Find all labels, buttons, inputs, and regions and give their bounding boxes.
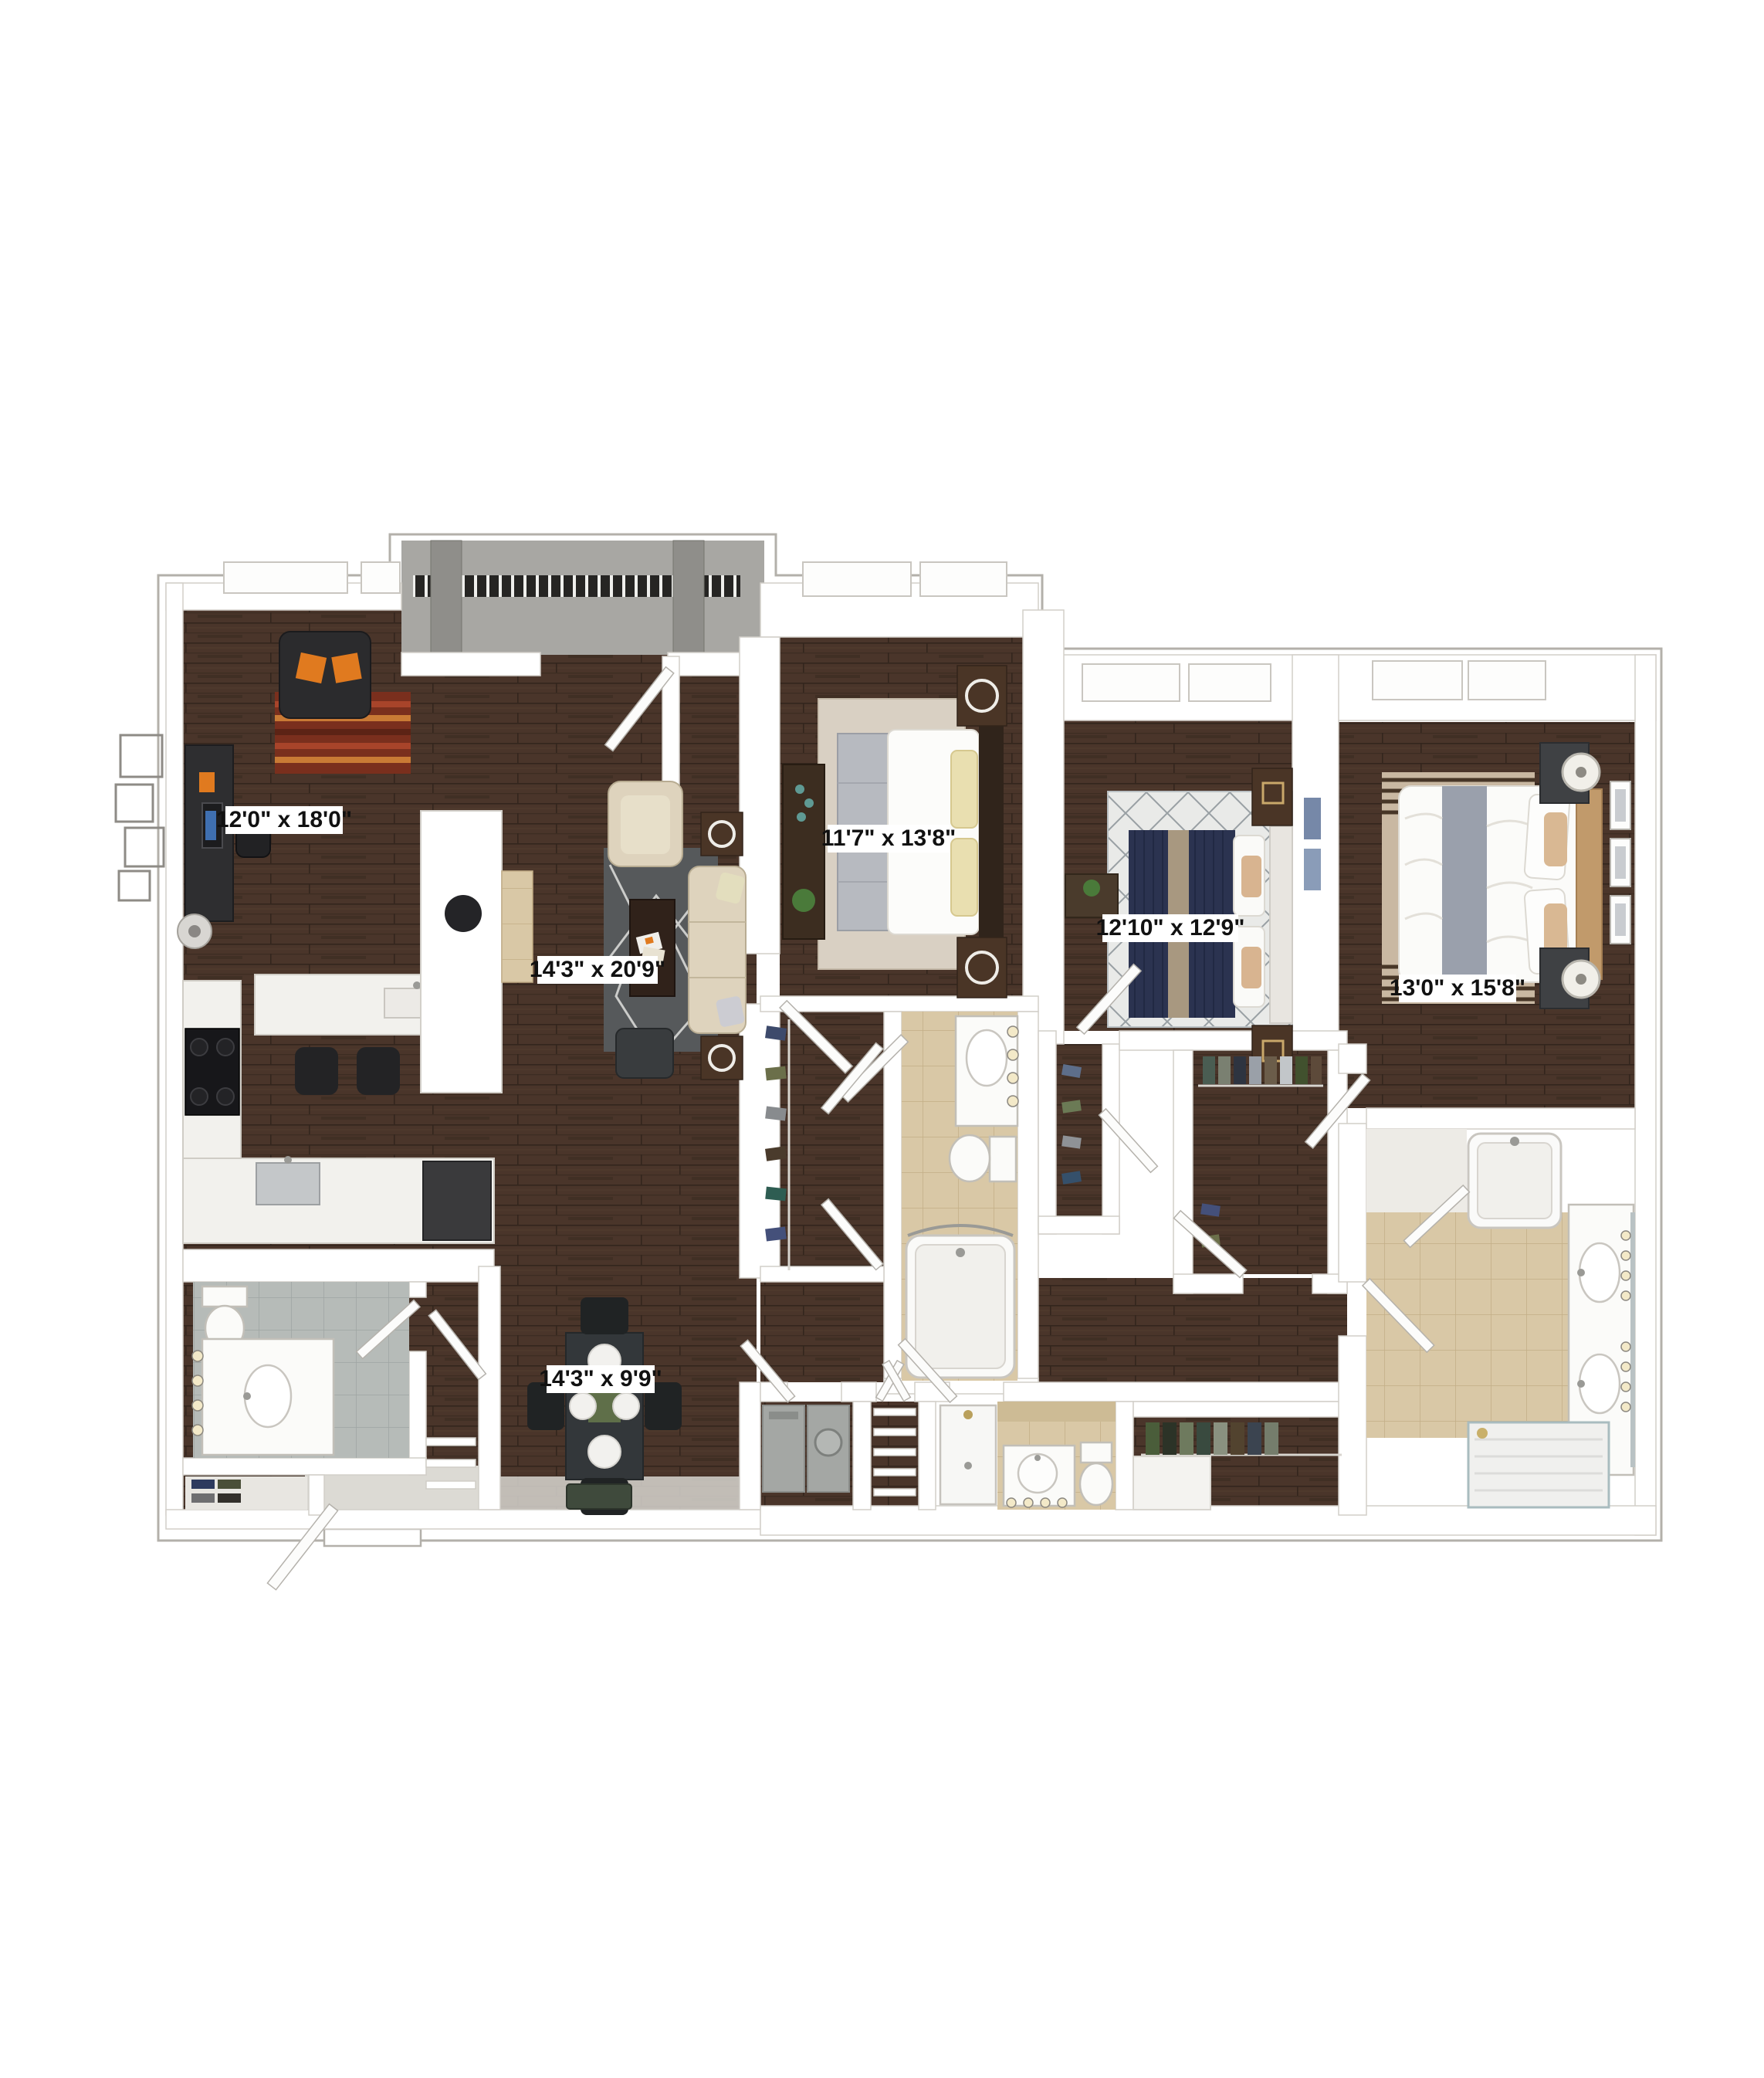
toilet	[1080, 1442, 1112, 1505]
svg-text:13'0" x 15'8": 13'0" x 15'8"	[1390, 975, 1525, 1001]
window	[920, 562, 1007, 596]
kitchen-dark-cabinet	[423, 1161, 491, 1240]
balcony-privacy-panel	[431, 541, 462, 653]
window	[1189, 664, 1271, 701]
island-sink	[384, 988, 422, 1018]
bath3-vanity	[1004, 1446, 1075, 1507]
entry-closet	[426, 1438, 476, 1489]
powder-room	[192, 1282, 409, 1458]
toilet	[950, 1135, 1016, 1181]
bed2-dresser	[1065, 874, 1118, 917]
floor-plan-page: 12'0" x 18'0" 11'7" x 13'8" 12'10" x 12'…	[0, 0, 1764, 2078]
svg-text:14'3" x 9'9": 14'3" x 9'9"	[539, 1366, 662, 1392]
bathtub	[906, 1225, 1014, 1378]
wall-frames	[1610, 781, 1630, 944]
wall-art	[116, 735, 164, 900]
balcony-privacy-panel	[673, 541, 704, 653]
bathroom-2	[902, 1012, 1018, 1381]
bathroom-3	[940, 1402, 1116, 1510]
master-shower	[1468, 1422, 1609, 1507]
plant	[1083, 880, 1100, 897]
room-label-dining: 14'3" x 9'9"	[539, 1365, 662, 1393]
master-tub	[1468, 1134, 1561, 1228]
svg-text:14'3" x 20'9": 14'3" x 20'9"	[530, 957, 665, 982]
window	[803, 562, 911, 596]
window	[1468, 661, 1546, 700]
bed1-dresser	[783, 764, 824, 939]
den-armchair	[279, 632, 371, 718]
barstool	[357, 1047, 400, 1095]
svg-text:12'0" x 18'0": 12'0" x 18'0"	[216, 807, 352, 832]
room-label-bedroom-1: 11'7" x 13'8"	[821, 825, 956, 853]
svg-text:11'7" x 13'8": 11'7" x 13'8"	[821, 825, 956, 851]
bed3-accent-pillow	[1544, 812, 1567, 866]
entry-step	[324, 1529, 421, 1546]
window	[1373, 661, 1462, 700]
kitchen-sink	[256, 1156, 320, 1205]
room-label-den: 12'0" x 18'0"	[216, 806, 352, 834]
island-faucet	[413, 981, 421, 989]
armchair	[608, 781, 682, 866]
bed1-pillow	[951, 751, 977, 828]
window	[361, 562, 400, 593]
shower-stall	[940, 1405, 996, 1504]
sofa	[689, 866, 746, 1033]
shoe-closet	[185, 1476, 307, 1510]
bed2-headboard	[1270, 826, 1292, 1023]
barstool	[295, 1047, 338, 1095]
shower-head	[1477, 1428, 1488, 1439]
bed2-accent-pillow	[1241, 947, 1261, 988]
bed2-accent-pillow	[1241, 856, 1261, 897]
room-label-bedroom-2: 12'10" x 12'9"	[1096, 914, 1245, 942]
window	[224, 562, 347, 593]
room-bedroom-3	[1382, 743, 1630, 1008]
dining-chair	[581, 1297, 628, 1334]
doormat	[567, 1484, 631, 1509]
window	[1082, 664, 1180, 701]
bed1-headboard	[979, 726, 1004, 938]
bath2-vanity	[956, 1016, 1018, 1126]
floor-plan: 12'0" x 18'0" 11'7" x 13'8" 12'10" x 12'…	[0, 0, 1764, 2078]
room-label-bedroom-3: 13'0" x 15'8"	[1390, 975, 1525, 1002]
room-label-living: 14'3" x 20'9"	[530, 956, 665, 984]
powder-vanity	[192, 1339, 334, 1455]
plant	[792, 889, 815, 912]
ottoman	[616, 1029, 673, 1078]
stove	[185, 1029, 239, 1115]
balcony	[401, 541, 764, 655]
svg-text:12'10" x 12'9": 12'10" x 12'9"	[1096, 915, 1245, 941]
